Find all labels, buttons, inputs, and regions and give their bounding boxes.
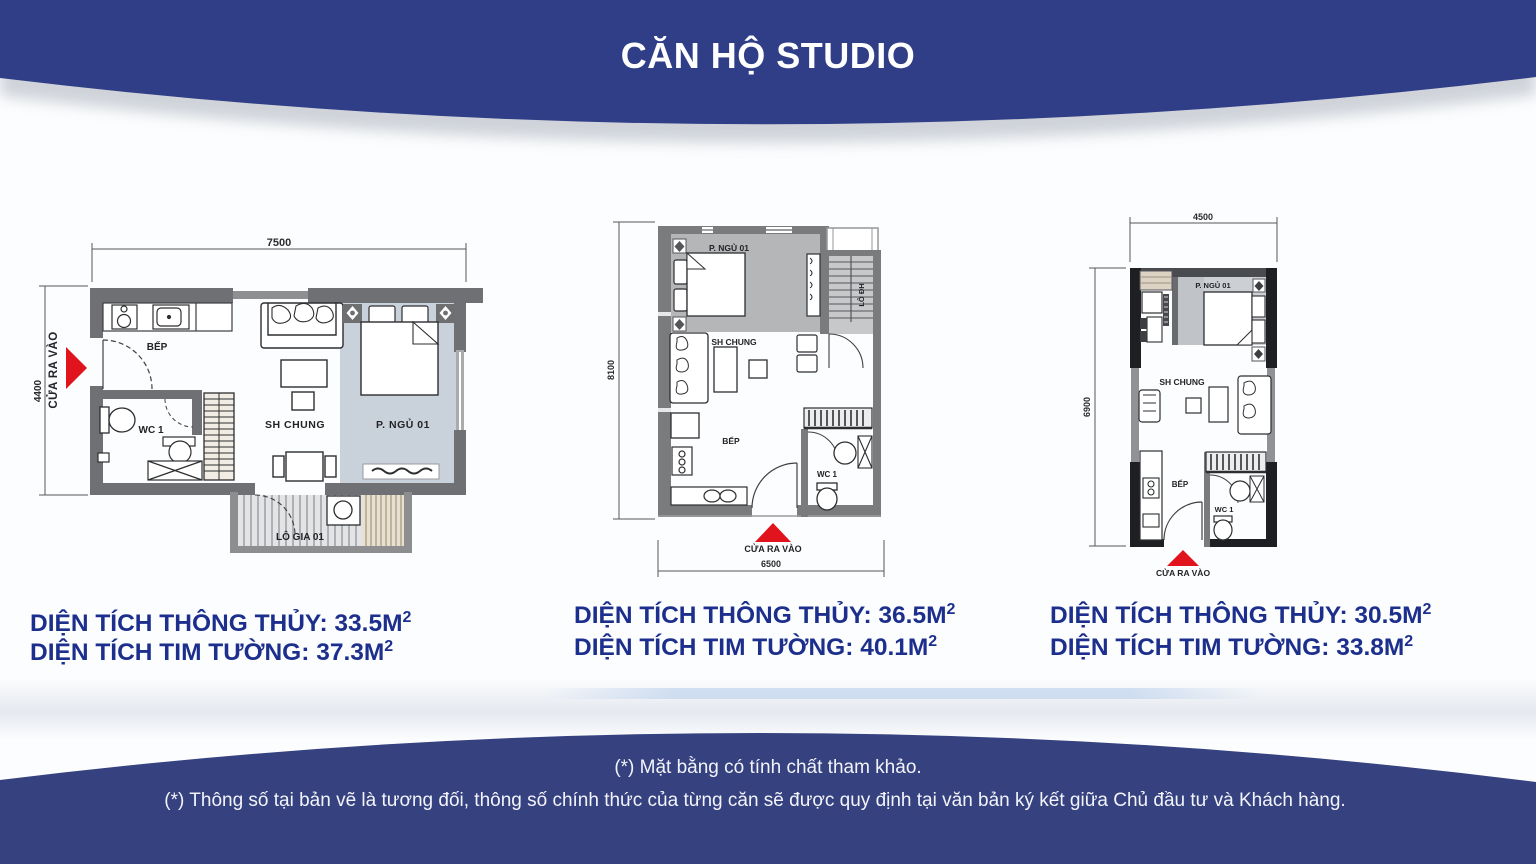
svg-text:BẾP: BẾP — [147, 340, 168, 353]
svg-text:LÔ ĐH: LÔ ĐH — [857, 283, 866, 306]
svg-text:P. NGỦ 01: P. NGỦ 01 — [376, 418, 430, 431]
svg-text:8100: 8100 — [606, 360, 616, 380]
svg-text:BẾP: BẾP — [722, 436, 740, 446]
svg-text:CỬA RA VÀO: CỬA RA VÀO — [47, 331, 60, 408]
svg-text:WC 1: WC 1 — [1215, 505, 1234, 514]
svg-text:7500: 7500 — [267, 237, 291, 249]
svg-text:6500: 6500 — [761, 559, 781, 569]
svg-text:CỬA RA VÀO: CỬA RA VÀO — [1156, 567, 1211, 578]
svg-text:4400: 4400 — [33, 379, 44, 402]
svg-text:CỬA RA VÀO: CỬA RA VÀO — [744, 543, 801, 554]
svg-text:WC 1: WC 1 — [817, 470, 838, 479]
svg-text:6900: 6900 — [1082, 397, 1092, 417]
svg-text:SH CHUNG: SH CHUNG — [711, 337, 757, 347]
svg-text:BẾP: BẾP — [1172, 479, 1189, 489]
svg-text:4500: 4500 — [1193, 212, 1213, 222]
svg-text:SH CHUNG: SH CHUNG — [1159, 377, 1205, 387]
svg-text:P. NGỦ 01: P. NGỦ 01 — [1195, 281, 1230, 290]
svg-text:WC 1: WC 1 — [139, 425, 164, 436]
svg-text:P. NGỦ 01: P. NGỦ 01 — [709, 242, 749, 253]
svg-text:SH CHUNG: SH CHUNG — [265, 419, 325, 431]
svg-text:LÔ GIA 01: LÔ GIA 01 — [276, 530, 324, 543]
